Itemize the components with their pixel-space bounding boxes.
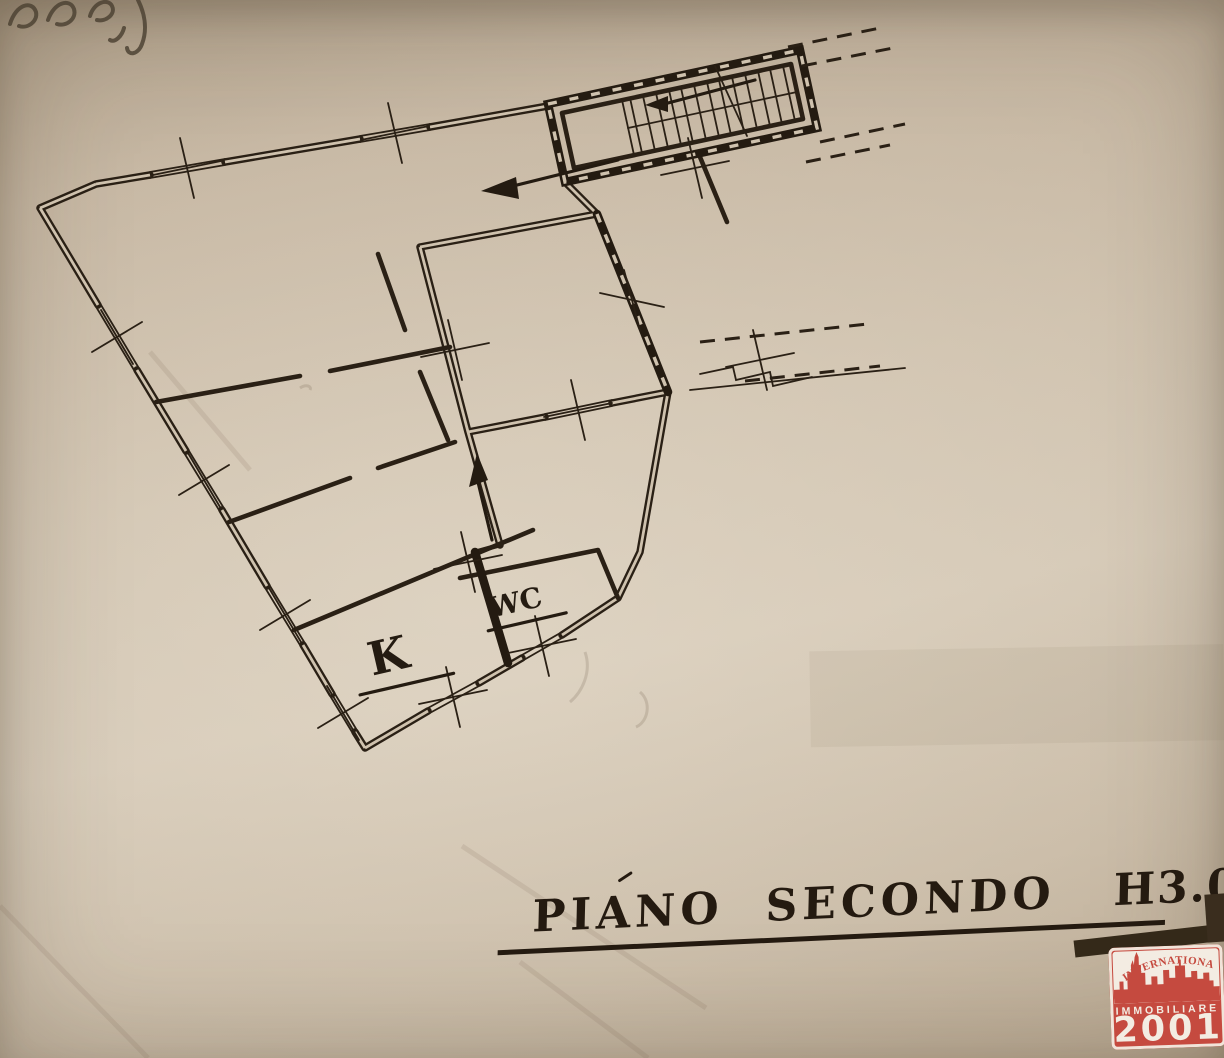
logo-upper-panel: INTERNATIONAL xyxy=(1112,948,1220,1004)
kitchen-label-text: K xyxy=(362,624,415,686)
exterior-walls xyxy=(40,106,668,748)
agency-logo: INTERNATIONAL IMMOBILIARE 2001 xyxy=(1108,944,1224,1050)
entrance-arrow xyxy=(481,160,618,199)
wc-room-label: WC xyxy=(480,576,566,631)
handwritten-scribble xyxy=(10,0,145,53)
caption-word-piano: PIANO xyxy=(532,883,724,943)
photo-corner-shadow xyxy=(1204,893,1224,942)
interior-walls xyxy=(156,157,727,663)
scanned-floor-plan-page: K WC PIANO SECONDO H3.00 INTERNATIONAL xyxy=(0,0,1224,1058)
logo-skyline-art: INTERNATIONAL xyxy=(1112,948,1220,1004)
survey-cross-marks xyxy=(92,103,794,740)
logo-2001-text: 2001 xyxy=(1111,1010,1224,1049)
paper-creases xyxy=(0,352,1224,1058)
stairwell xyxy=(548,50,817,182)
kitchen-room-label: K xyxy=(347,616,454,695)
